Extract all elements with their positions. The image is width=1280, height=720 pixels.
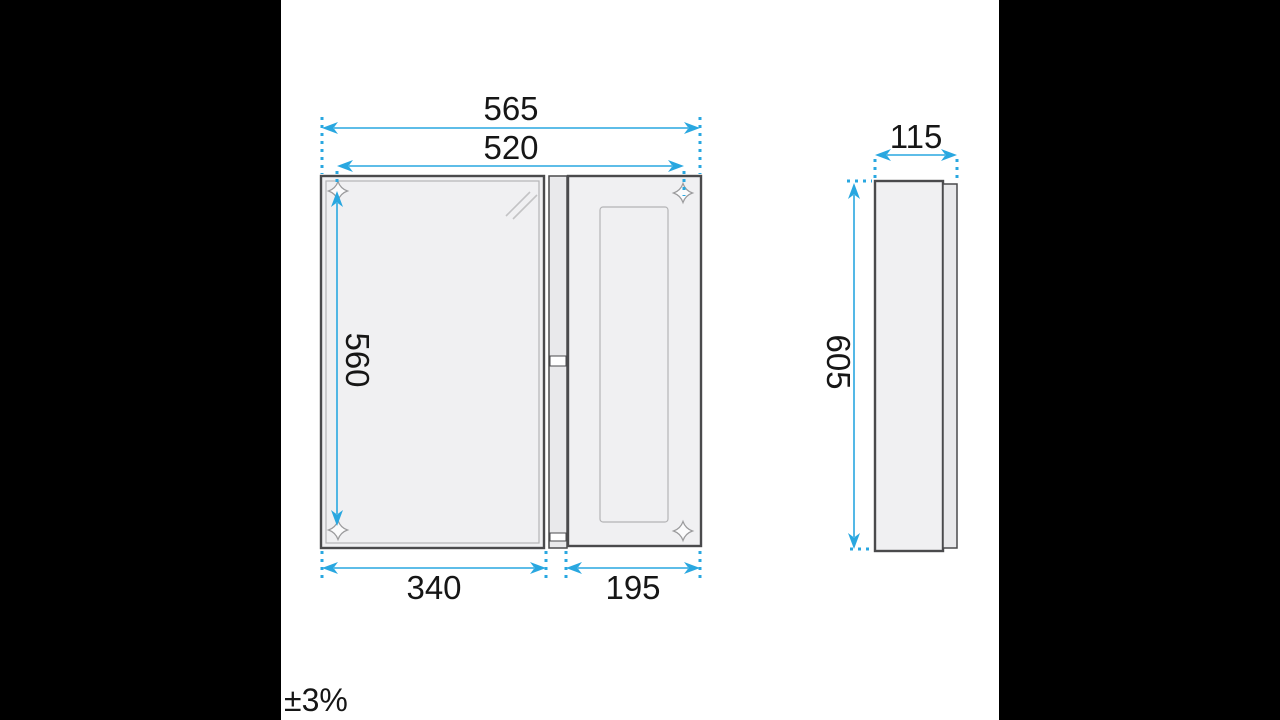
side-view: [875, 181, 957, 551]
dim-cabinet-width-label: 195: [572, 571, 694, 606]
side-cabinet-door: [568, 176, 701, 546]
front-view: [321, 176, 701, 548]
drawing-canvas: 565 520 560 340 195 115 605 ±3%: [0, 0, 1280, 720]
hinge-strip-mid-band: [550, 356, 566, 366]
dim-door-width-label: 340: [373, 571, 495, 606]
cabinet-technical-drawing: [0, 0, 1280, 720]
hinge-strip-bottom-band: [550, 533, 566, 541]
dim-hole-height-label: 560: [334, 295, 374, 425]
side-view-body: [875, 181, 943, 551]
dim-overall-width-label: 565: [450, 92, 572, 127]
dim-height-label: 605: [815, 297, 855, 427]
tolerance-note: ±3%: [284, 682, 348, 719]
dim-depth-label: 115: [855, 120, 977, 155]
side-view-door-edge: [943, 184, 957, 548]
dim-hole-width-label: 520: [450, 131, 572, 166]
